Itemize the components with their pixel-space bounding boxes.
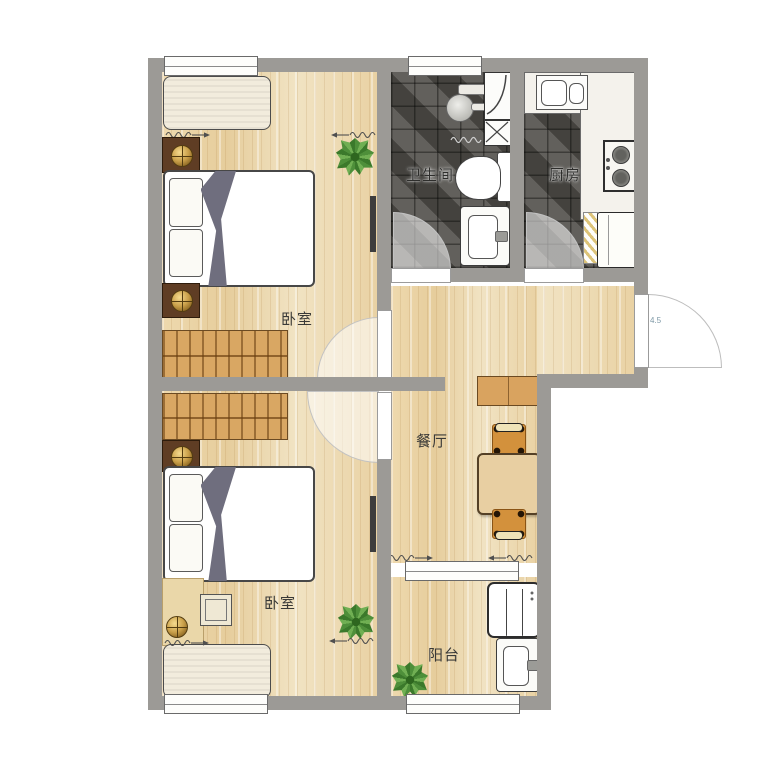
room-label-dining: 餐厅 (416, 430, 448, 451)
room-label-bedroom-top: 卧室 (281, 308, 313, 329)
nightstand (162, 137, 200, 173)
curtain-symbol (450, 131, 486, 149)
entry-door-swing-arc (648, 294, 722, 368)
wall (377, 268, 391, 282)
tv (370, 496, 376, 552)
window (406, 694, 520, 714)
wall (377, 458, 391, 710)
window-bench (163, 76, 271, 130)
door-leaf (391, 268, 451, 283)
room-label-bathroom: 卫生间 (406, 164, 454, 185)
window-bench (163, 644, 271, 698)
dining-table (477, 453, 541, 515)
bed (163, 170, 315, 287)
room-label-kitchen: 厨房 (549, 164, 581, 185)
wardrobe (162, 393, 288, 440)
washing-machine-icon (487, 582, 541, 638)
door-leaf (377, 310, 392, 378)
sideboard (477, 376, 539, 406)
entry-door-leaf (634, 294, 649, 368)
fridge-icon (597, 212, 637, 268)
basin (503, 646, 529, 686)
nightstand (162, 283, 200, 318)
sink-bowl (541, 80, 567, 106)
wardrobe (162, 330, 288, 379)
pillow (169, 524, 203, 572)
knob-icon (171, 290, 193, 312)
door-leaf (524, 268, 584, 283)
wall (510, 58, 524, 282)
shower-glass (484, 72, 512, 120)
wash-basin (460, 206, 510, 266)
burner (612, 169, 630, 187)
balcony-door-window (405, 561, 519, 581)
dining-chair (492, 424, 526, 456)
wall (148, 377, 445, 391)
blanket (201, 171, 237, 286)
duct-x-icon (484, 120, 512, 146)
wall (582, 268, 648, 282)
drying-rack (583, 212, 598, 264)
floor-plan: 卧室 卫生间 厨房 餐厅 卧室 (0, 0, 784, 784)
stove-knob (606, 166, 610, 170)
toilet-icon (455, 156, 501, 200)
tv (370, 196, 376, 252)
pillow (169, 474, 203, 522)
entry-dimension-label: 4.5 (650, 316, 661, 325)
knob-icon (171, 145, 193, 167)
sink-bowl (569, 83, 584, 104)
window (164, 56, 258, 76)
window (164, 694, 268, 714)
room-label-balcony: 阳台 (428, 644, 460, 665)
room-label-bedroom-bottom: 卧室 (264, 592, 296, 613)
wall (449, 268, 524, 282)
basin (468, 215, 498, 259)
knob-icon (171, 446, 193, 468)
chair-back (495, 423, 523, 432)
pillow (169, 229, 203, 277)
faucet-icon (495, 231, 508, 242)
burner (612, 146, 630, 164)
bed (163, 466, 315, 582)
dining-chair (492, 509, 526, 539)
desk-chair (200, 594, 232, 626)
wall (634, 58, 648, 294)
pillow (169, 178, 203, 227)
blanket (201, 467, 237, 581)
curtain-symbol (328, 632, 374, 650)
shower-head-icon (446, 94, 474, 122)
chair-back (495, 531, 523, 540)
wall (537, 388, 551, 710)
curtain-symbol (164, 634, 210, 652)
window (408, 56, 482, 76)
mop-sink (496, 638, 540, 692)
wall (537, 374, 648, 388)
stove-icon (603, 140, 637, 192)
stove-knob (606, 158, 610, 162)
kitchen-sink (536, 75, 588, 110)
door-leaf (377, 392, 392, 460)
